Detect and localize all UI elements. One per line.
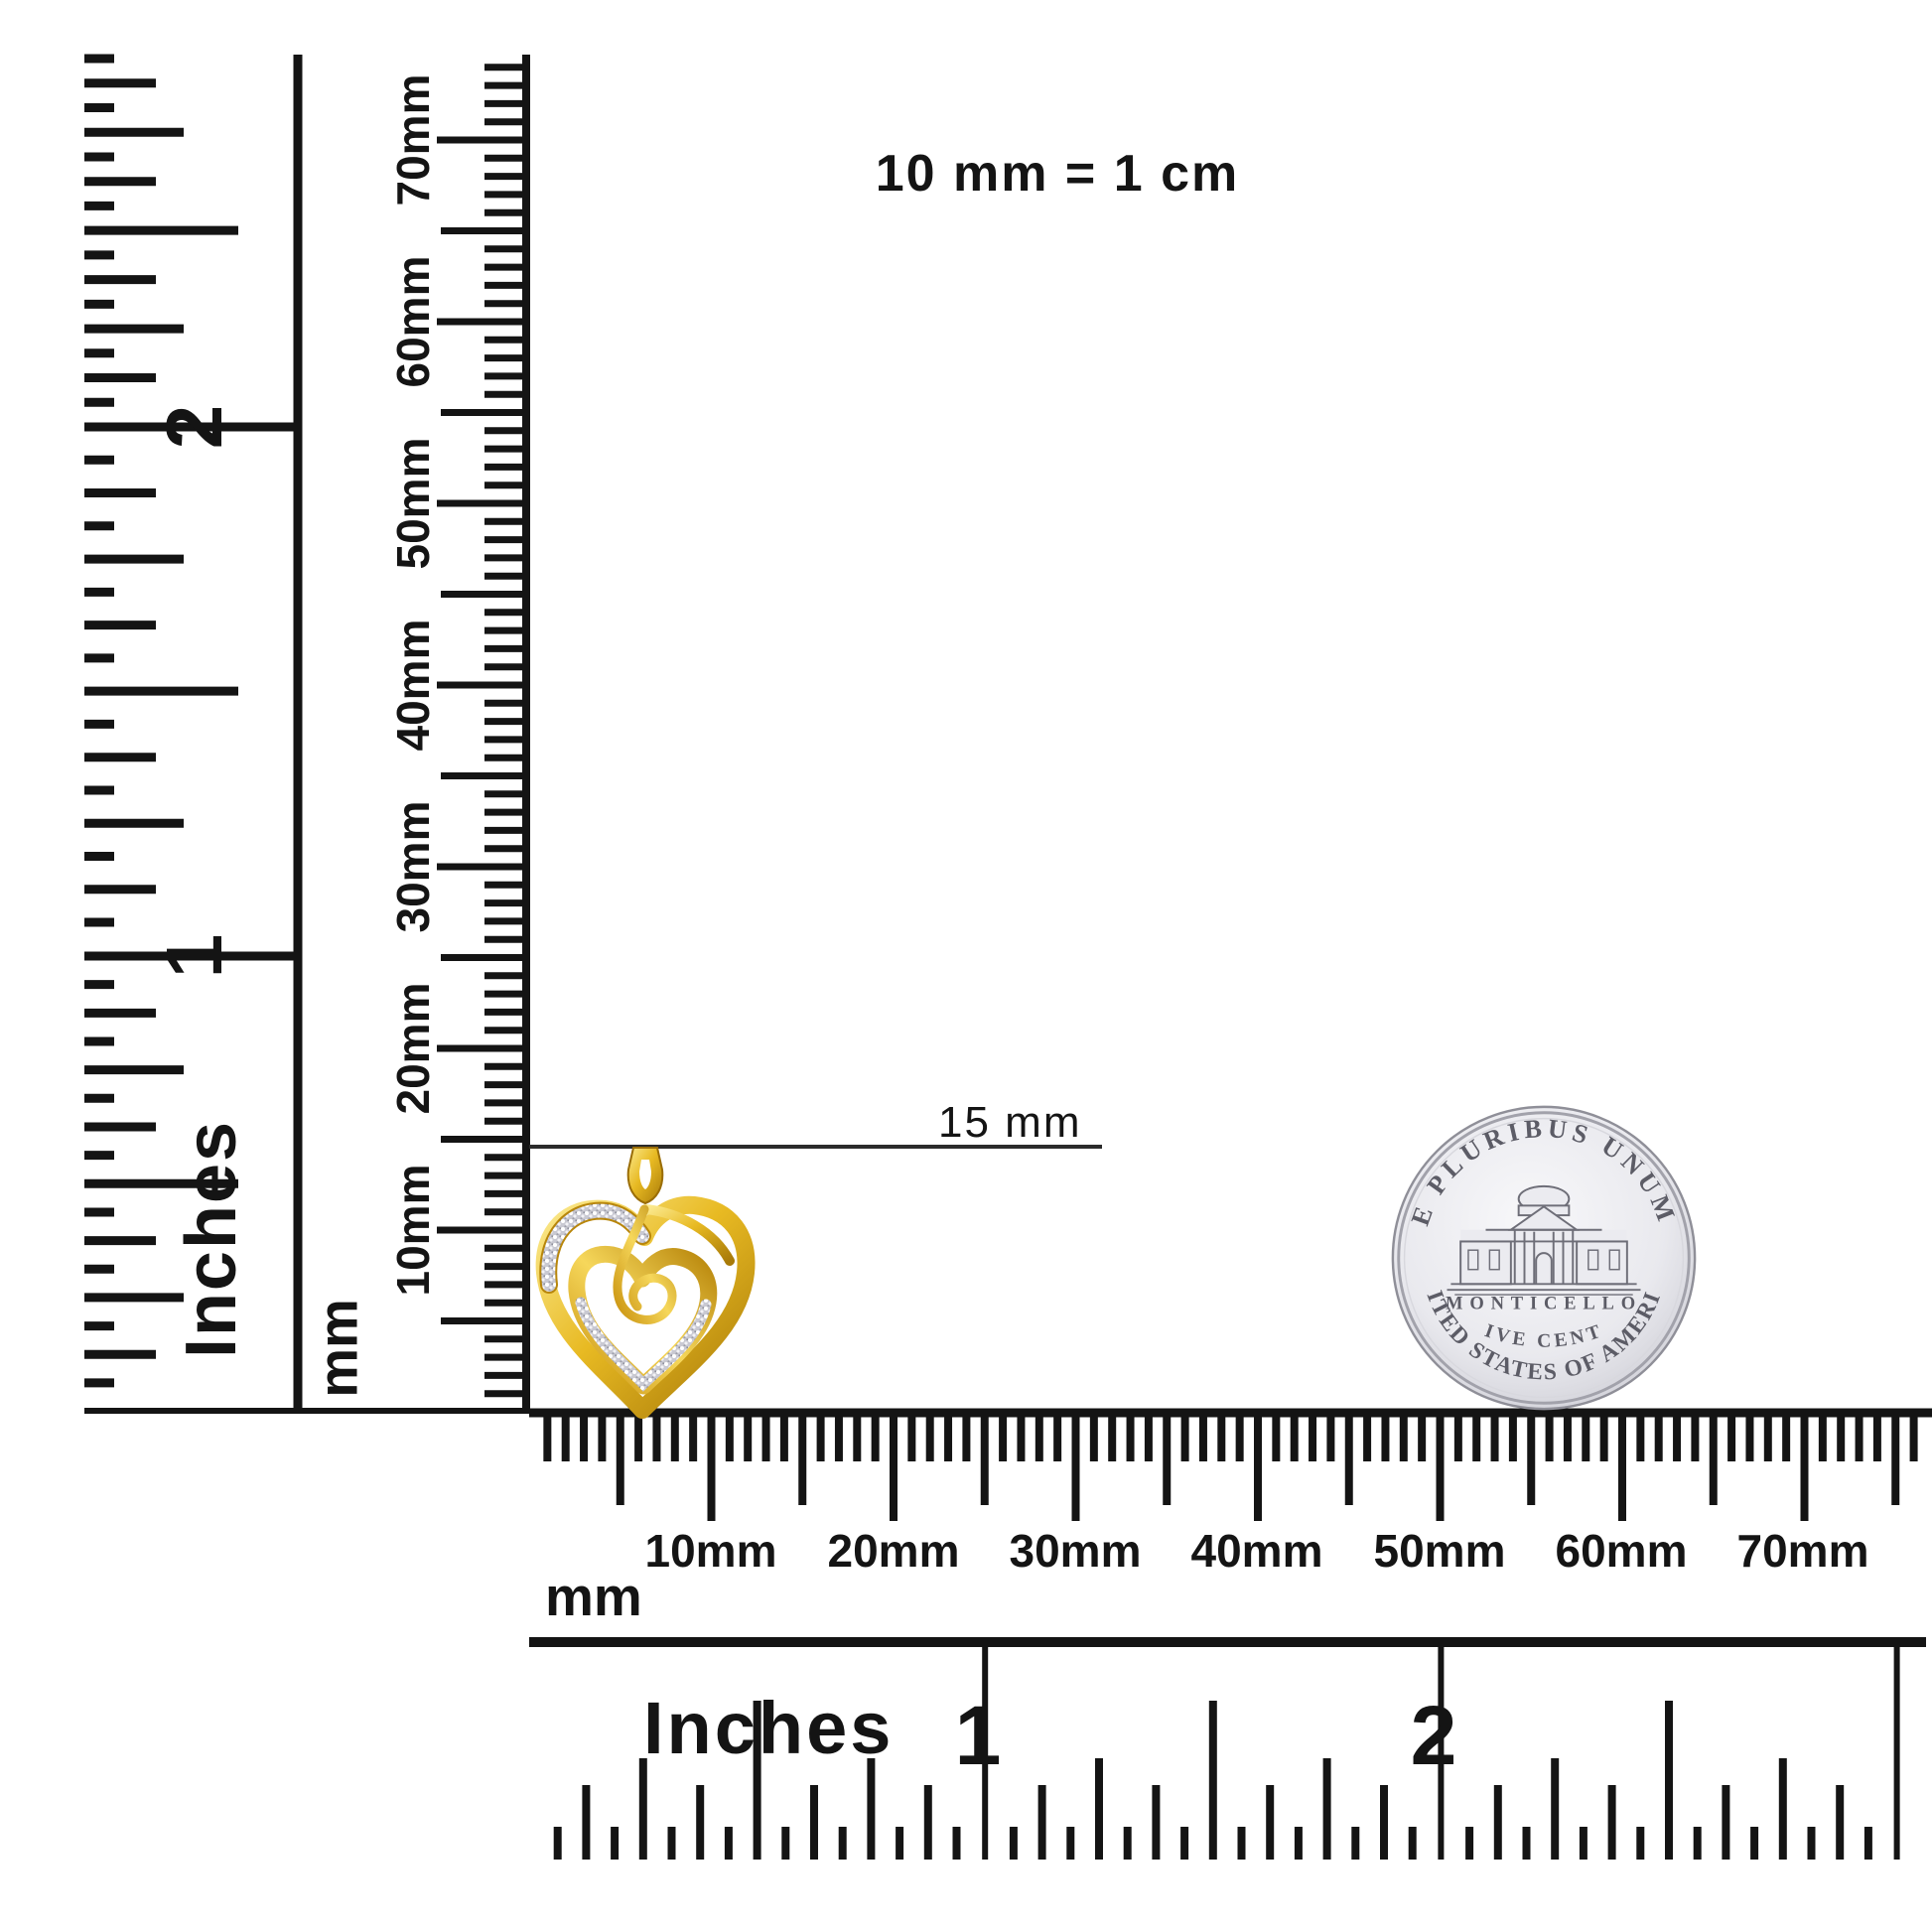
bottom-mm-ruler-label-10: 10mm: [645, 1524, 777, 1578]
pendant-size-label: 15 mm: [938, 1098, 1081, 1148]
heart-pendant-image: [529, 1140, 758, 1428]
bottom-mm-ruler-label-70: 70mm: [1737, 1524, 1869, 1578]
left-mm-ruler-label-40: 40mm: [386, 620, 440, 752]
left-inch-ruler-label-1: 1: [149, 934, 240, 979]
bottom-mm-ruler-label-60: 60mm: [1556, 1524, 1688, 1578]
bottom-inch-ruler-label-2: 2: [1411, 1688, 1457, 1784]
bottom-mm-ruler-ticks: [547, 1414, 1913, 1521]
product-scale-diagram: 2 1 Inches 70mm 60mm 50mm 40mm 30mm 20mm…: [0, 0, 1932, 1932]
bottom-mm-ruler-label-40: 40mm: [1191, 1524, 1323, 1578]
bottom-inch-ruler-label-1: 1: [955, 1688, 1002, 1784]
bottom-inch-ruler-unit-label: Inches: [643, 1686, 894, 1770]
left-mm-ruler-label-60: 60mm: [386, 256, 440, 388]
left-mm-ruler-label-70: 70mm: [386, 74, 440, 207]
bottom-mm-ruler-label-50: 50mm: [1374, 1524, 1506, 1578]
left-mm-ruler-label-20: 20mm: [386, 983, 440, 1115]
coin-building-label: MONTICELLO: [1446, 1294, 1642, 1314]
nickel-coin-image: E PLURIBUS UNUM UNITED STATES OF AMERICA…: [1389, 1103, 1699, 1413]
bottom-mm-ruler-label-30: 30mm: [1010, 1524, 1142, 1578]
scale-note: 10 mm = 1 cm: [876, 144, 1240, 204]
bottom-mm-ruler-label-20: 20mm: [828, 1524, 960, 1578]
left-inch-ruler-unit-label: Inches: [171, 1120, 252, 1358]
pendant-bail: [628, 1148, 663, 1203]
left-mm-ruler-label-50: 50mm: [386, 438, 440, 570]
left-mm-ruler-ticks: [437, 55, 526, 1414]
bottom-mm-ruler-unit-label: mm: [545, 1565, 642, 1628]
left-mm-ruler-label-10: 10mm: [386, 1165, 440, 1297]
left-mm-ruler-label-30: 30mm: [386, 801, 440, 933]
left-inch-ruler-label-2: 2: [149, 405, 240, 450]
left-mm-ruler-unit-label: mm: [306, 1299, 370, 1398]
rulers-layer: [0, 0, 1932, 1932]
